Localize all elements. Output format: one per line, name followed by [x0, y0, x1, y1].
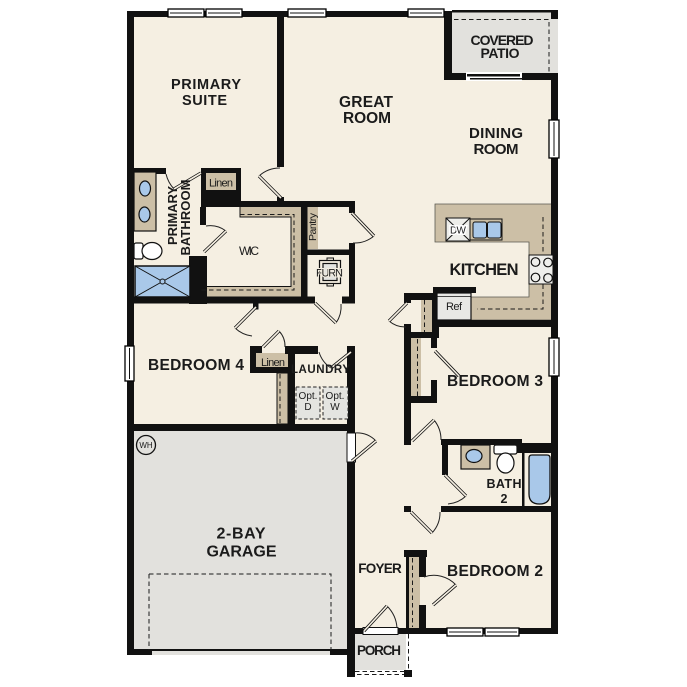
- svg-text:GARAGE: GARAGE: [207, 544, 277, 561]
- svg-text:BEDROOM 3: BEDROOM 3: [447, 373, 543, 390]
- svg-text:W: W: [330, 402, 340, 413]
- svg-text:BEDROOM 4: BEDROOM 4: [148, 357, 244, 374]
- svg-text:DINING: DINING: [469, 125, 523, 142]
- svg-text:PRIMARY: PRIMARY: [171, 77, 241, 93]
- svg-text:PORCH: PORCH: [357, 643, 401, 658]
- svg-text:Pantry: Pantry: [307, 212, 319, 241]
- svg-text:DW: DW: [450, 226, 467, 237]
- svg-text:2-BAY: 2-BAY: [217, 526, 266, 543]
- svg-text:WH: WH: [139, 441, 153, 450]
- svg-text:PATIO: PATIO: [481, 45, 520, 61]
- svg-text:Linen: Linen: [209, 178, 233, 190]
- svg-text:Opt.: Opt.: [326, 391, 345, 402]
- svg-text:D: D: [304, 402, 311, 413]
- svg-text:BATHROOM: BATHROOM: [178, 180, 193, 256]
- svg-text:Linen: Linen: [261, 357, 285, 369]
- svg-text:WIC: WIC: [239, 244, 259, 258]
- svg-text:LAUNDRY: LAUNDRY: [291, 364, 350, 376]
- svg-text:FURN: FURN: [316, 268, 343, 280]
- svg-text:ROOM: ROOM: [343, 110, 391, 127]
- svg-text:KITCHEN: KITCHEN: [450, 261, 519, 279]
- svg-text:BEDROOM 2: BEDROOM 2: [447, 563, 543, 580]
- svg-text:2: 2: [501, 492, 508, 506]
- svg-text:FOYER: FOYER: [358, 561, 402, 576]
- svg-text:SUITE: SUITE: [182, 93, 227, 109]
- svg-text:Ref: Ref: [446, 301, 463, 313]
- svg-text:BATH: BATH: [487, 477, 522, 491]
- svg-text:Opt.: Opt.: [299, 391, 318, 402]
- svg-text:ROOM: ROOM: [474, 141, 519, 158]
- svg-text:GREAT: GREAT: [339, 94, 394, 111]
